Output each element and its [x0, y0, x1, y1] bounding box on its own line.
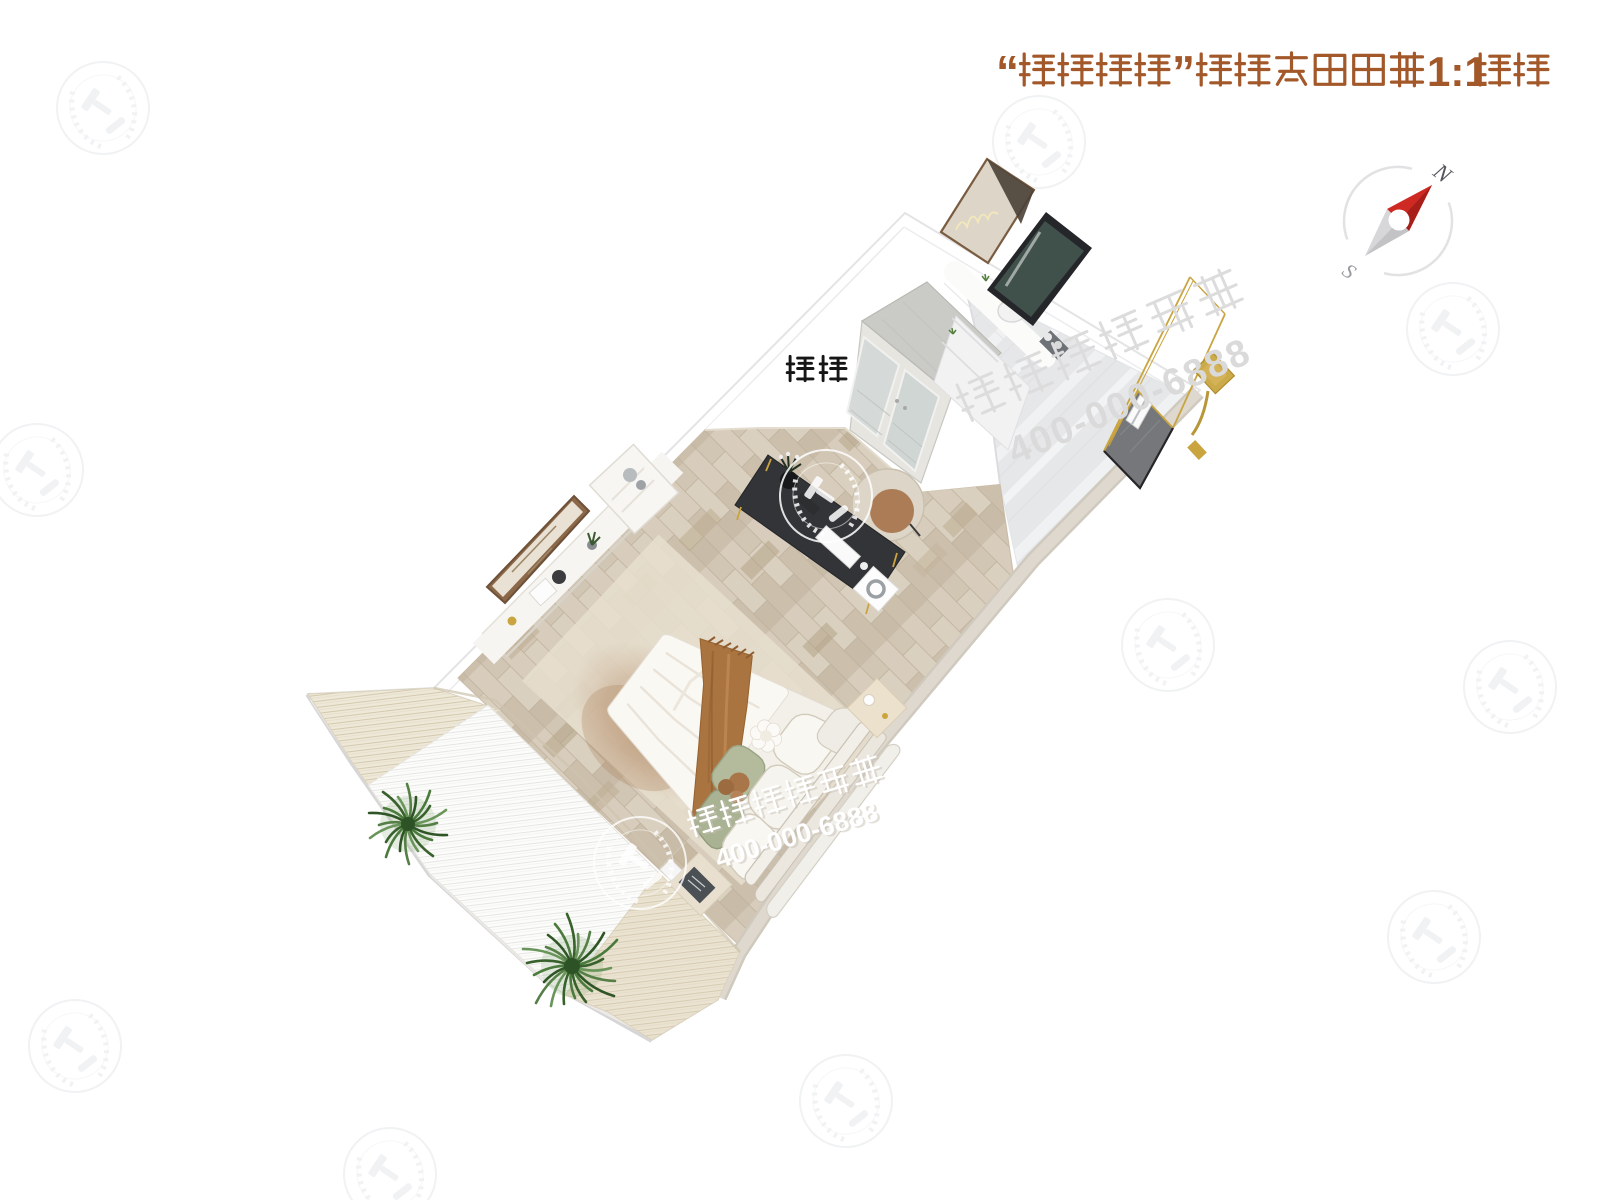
svg-text:“: “	[996, 46, 1019, 98]
svg-text:”: ”	[1172, 46, 1195, 98]
svg-text:1:1: 1:1	[1427, 48, 1488, 95]
